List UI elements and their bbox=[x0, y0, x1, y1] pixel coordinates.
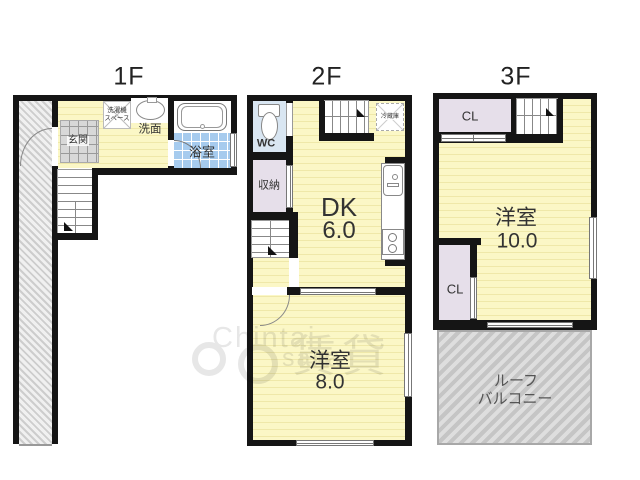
label-senmen: 洗面 bbox=[139, 124, 162, 136]
drain-icon bbox=[200, 124, 205, 129]
closet-bottom-sliding-door bbox=[470, 277, 477, 319]
wall bbox=[92, 168, 237, 175]
label-dk-size: 6.0 bbox=[322, 219, 355, 243]
label-bedroom-3f-size: 10.0 bbox=[497, 231, 538, 252]
kitchen-sink-icon bbox=[383, 165, 403, 196]
faucet-icon bbox=[147, 97, 157, 103]
stairs-arrow-icon bbox=[64, 222, 73, 231]
floor-title-3f: 3F bbox=[500, 65, 531, 90]
wall bbox=[92, 168, 98, 240]
label-wc: WC bbox=[257, 139, 275, 150]
label-washer-2: スペース bbox=[104, 116, 129, 123]
door-tick bbox=[473, 134, 474, 142]
label-balcony-2: バルコニー bbox=[478, 392, 553, 407]
label-washer-1: 洗濯機 bbox=[107, 108, 127, 115]
watermark-circle-icon bbox=[192, 342, 226, 376]
label-bedroom-2f-size: 8.0 bbox=[315, 372, 344, 393]
stairs-arrow-icon bbox=[546, 108, 554, 116]
label-closet-top: CL bbox=[462, 110, 479, 123]
bedroom-3f-window-right bbox=[589, 217, 597, 279]
label-storage: 収納 bbox=[258, 181, 280, 192]
floorplan: 1F 玄関 洗濯機 スペース 洗面 浴室 2F bbox=[0, 0, 640, 480]
wall bbox=[511, 134, 563, 143]
wall bbox=[13, 95, 19, 444]
wall bbox=[247, 212, 293, 221]
wc-door-opening bbox=[286, 103, 293, 136]
label-genkan: 玄関 bbox=[67, 136, 89, 146]
label-bedroom-3f: 洋室 bbox=[495, 208, 537, 229]
dk-window bbox=[300, 288, 376, 295]
wall bbox=[52, 233, 98, 240]
burner-icon bbox=[388, 244, 397, 253]
entrance-door-opening bbox=[52, 127, 58, 166]
wall bbox=[247, 152, 293, 160]
toilet-bowl-icon bbox=[261, 112, 278, 140]
bedroom-door-opening bbox=[252, 287, 287, 295]
label-fridge: 冷蔵庫 bbox=[380, 114, 400, 120]
bathroom-window bbox=[230, 133, 237, 167]
kitchen-sink-detail bbox=[387, 183, 399, 187]
stairs-arrow-icon bbox=[357, 109, 365, 117]
label-bathroom: 浴室 bbox=[189, 146, 215, 159]
hall-opening bbox=[289, 258, 299, 287]
stairs-divider bbox=[75, 202, 76, 233]
bedroom-window-bottom bbox=[296, 440, 374, 446]
floor-title-2f: 2F bbox=[311, 65, 342, 90]
stairs-2f-up bbox=[325, 101, 368, 133]
kitchen-faucet-icon bbox=[392, 174, 398, 180]
wall bbox=[319, 133, 374, 141]
wall bbox=[289, 212, 298, 258]
storage-sliding-door bbox=[286, 165, 293, 208]
bedroom-3f-window-bottom bbox=[487, 322, 573, 328]
label-balcony-1: ルーフ bbox=[494, 374, 538, 389]
label-bedroom-2f: 洋室 bbox=[309, 351, 351, 372]
washbasin-icon bbox=[136, 100, 165, 120]
floor-title-1f: 1F bbox=[113, 65, 144, 90]
bedroom-window-right bbox=[404, 333, 412, 397]
stairs-arrow-icon bbox=[268, 246, 277, 255]
wall bbox=[433, 238, 481, 245]
wall bbox=[591, 93, 597, 330]
label-closet-bottom: CL bbox=[447, 283, 464, 296]
wall bbox=[385, 260, 405, 266]
stairs-3f bbox=[517, 99, 557, 134]
burner-icon bbox=[388, 233, 397, 242]
